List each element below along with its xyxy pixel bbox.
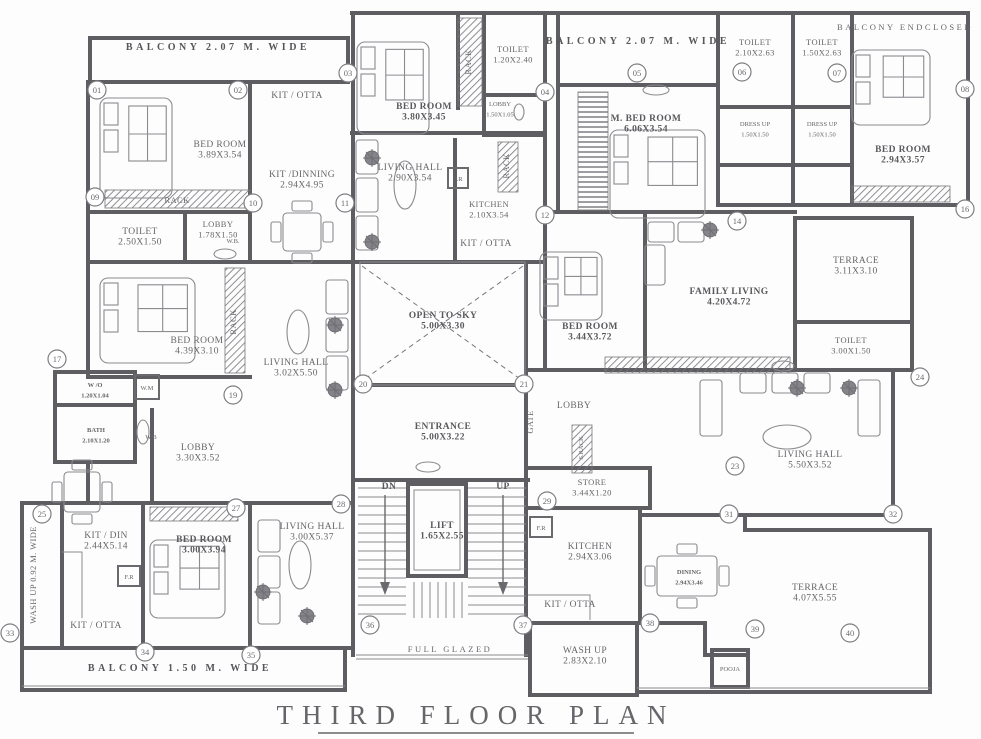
sofa-seat bbox=[858, 380, 880, 436]
label-balcony-enclosed: BALCONY ENDCLOSED bbox=[837, 22, 973, 32]
label-bed-room-top-mid-name: BED ROOM bbox=[396, 102, 452, 112]
floor-plan-page: BALCONY 2.07 M. WIDEBALCONY 2.07 M. WIDE… bbox=[0, 0, 981, 739]
column-marker-08-number: 08 bbox=[961, 84, 970, 94]
label-up: UP bbox=[496, 482, 509, 492]
label-fr-2-name: F.R bbox=[124, 574, 134, 581]
label-balcony-bottom: BALCONY 1.50 M. WIDE bbox=[88, 663, 272, 674]
label-toilet-top-mid: TOILET1.20X2.40 bbox=[493, 44, 533, 65]
chair bbox=[677, 598, 697, 608]
label-pooja-name: POOJA bbox=[720, 666, 741, 673]
column-marker-24: 24 bbox=[911, 368, 929, 386]
room-labels-layer: BALCONY 2.07 M. WIDEBALCONY 2.07 M. WIDE… bbox=[28, 22, 973, 674]
label-wb-lobby-name: W.B. bbox=[226, 238, 239, 245]
plant bbox=[326, 381, 344, 399]
label-wb-bath: W.B bbox=[145, 434, 157, 441]
column-marker-29-number: 29 bbox=[543, 496, 552, 506]
column-marker-10: 10 bbox=[244, 194, 262, 212]
column-marker-14: 14 bbox=[728, 212, 746, 230]
column-marker-06-number: 06 bbox=[738, 67, 747, 77]
label-kitchen-top-mid-dim: 2.10X3.54 bbox=[469, 210, 509, 220]
label-bed-room-top-left: BED ROOM3.89X3.54 bbox=[193, 140, 246, 161]
chair bbox=[271, 222, 281, 242]
label-lift-dim: 1.65X2.55 bbox=[420, 532, 464, 542]
label-lobby-left-name: LOBBY bbox=[203, 219, 234, 229]
column-marker-33-number: 33 bbox=[6, 628, 15, 638]
label-lobby-small-name: LOBBY bbox=[489, 101, 511, 108]
label-bed-room-top-left-name: BED ROOM bbox=[193, 140, 246, 150]
label-living-hall-mid-left: LIVING HALL3.02X5.50 bbox=[264, 358, 329, 379]
label-kit-otta-top-left-name: KIT / OTTA bbox=[271, 91, 323, 101]
plant bbox=[298, 607, 316, 625]
wash-basin bbox=[214, 249, 236, 259]
label-wb-bath-name: W.B bbox=[145, 434, 157, 441]
bed bbox=[610, 130, 705, 218]
column-marker-07-number: 07 bbox=[833, 68, 842, 78]
label-up-name: UP bbox=[496, 482, 509, 492]
label-terrace-bottom-dim: 4.07X5.55 bbox=[793, 594, 837, 604]
chair bbox=[719, 566, 729, 586]
label-lift-name: LIFT bbox=[430, 521, 454, 531]
label-store: STORE3.44X1.20 bbox=[572, 477, 612, 498]
label-lobby-small: LOBBY1.50X1.05 bbox=[486, 101, 513, 119]
label-full-glazed: FULL GLAZED bbox=[408, 644, 493, 654]
label-dress-up-2: DRESS UP1.50X1.50 bbox=[807, 121, 838, 139]
label-m-bed-room: M. BED ROOM6.06X3.54 bbox=[611, 114, 682, 135]
label-lobby-bottom-left-dim: 3.30X3.52 bbox=[176, 454, 220, 464]
label-wash-up-right-name: WASH UP bbox=[563, 646, 607, 656]
label-dress-up-2-dim: 1.50X1.50 bbox=[808, 132, 835, 139]
label-toilet-top-mid-dim: 1.20X2.40 bbox=[493, 55, 533, 65]
label-dress-up-1: DRESS UP1.50X1.50 bbox=[740, 121, 771, 139]
column-marker-10-number: 10 bbox=[249, 198, 258, 208]
label-w-o-name: W /O bbox=[88, 382, 103, 389]
column-marker-29: 29 bbox=[538, 492, 556, 510]
label-lift: LIFT1.65X2.55 bbox=[420, 521, 464, 542]
column-marker-25: 25 bbox=[33, 505, 51, 523]
label-family-living: FAMILY LIVING4.20X4.72 bbox=[689, 287, 768, 308]
column-marker-28-number: 28 bbox=[337, 499, 346, 509]
label-kit-dinning: KIT /DINNING2.94X4.95 bbox=[269, 170, 335, 191]
label-s-rack: S.RACK bbox=[578, 436, 585, 460]
dining-table bbox=[657, 556, 717, 596]
column-marker-06: 06 bbox=[733, 63, 751, 81]
label-bath-name: BATH bbox=[87, 427, 105, 434]
label-rack-vert-3: RACK bbox=[228, 309, 238, 335]
label-kit-otta-mid: KIT / OTTA bbox=[460, 239, 512, 249]
label-w-o-dim: 1.20X1.04 bbox=[81, 393, 109, 400]
label-toilet-top-2: TOILET1.50X2.63 bbox=[802, 37, 842, 58]
label-open-to-sky-dim: 5.00X3.30 bbox=[421, 322, 465, 332]
label-dress-up-1-name: DRESS UP bbox=[740, 121, 771, 128]
label-living-hall-right: LIVING HALL5.50X3.52 bbox=[778, 450, 843, 471]
label-kitchen-top-mid-name: KITCHEN bbox=[469, 199, 509, 209]
label-kit-din: KIT / DIN2.44X5.14 bbox=[84, 531, 128, 552]
label-kit-otta-right: KIT / OTTA bbox=[544, 600, 596, 610]
label-bed-room-mid-name: BED ROOM bbox=[562, 322, 618, 332]
label-living-hall-right-dim: 5.50X3.52 bbox=[788, 461, 832, 471]
dining-table bbox=[64, 472, 100, 512]
label-rack-vert-3-name: RACK bbox=[228, 309, 238, 335]
column-marker-12: 12 bbox=[536, 206, 554, 224]
column-marker-17: 17 bbox=[48, 350, 66, 368]
label-kit-dinning-name: KIT /DINNING bbox=[269, 170, 335, 180]
bed bbox=[100, 98, 172, 198]
label-s-rack-name: S.RACK bbox=[578, 436, 585, 460]
label-balcony-top-mid: BALCONY 2.07 M. WIDE bbox=[546, 36, 730, 47]
label-fr-1-name: F.R bbox=[453, 176, 463, 183]
label-kit-otta-mid-name: KIT / OTTA bbox=[460, 239, 512, 249]
plant bbox=[254, 583, 272, 601]
label-living-hall-right-name: LIVING HALL bbox=[778, 450, 843, 460]
label-gate-name: GATE bbox=[525, 410, 535, 433]
column-marker-20: 20 bbox=[354, 375, 372, 393]
label-toilet-top-1: TOILET2.10X2.63 bbox=[735, 37, 775, 58]
column-marker-38-number: 38 bbox=[646, 618, 655, 628]
wash-basin bbox=[416, 462, 440, 472]
plant bbox=[788, 379, 806, 397]
sofa-seat bbox=[258, 556, 280, 588]
label-dining: DINING2.94X3.46 bbox=[675, 569, 703, 587]
label-terrace-bottom: TERRACE4.07X5.55 bbox=[792, 583, 838, 604]
label-rack-vert-2: RACK bbox=[501, 153, 511, 179]
label-dining-name: DINING bbox=[677, 569, 701, 576]
label-bed-room-top-right-name: BED ROOM bbox=[875, 145, 931, 155]
plant bbox=[326, 316, 344, 334]
label-toilet-top-2-dim: 1.50X2.63 bbox=[802, 48, 842, 58]
label-kit-otta-bottom-left-name: KIT / OTTA bbox=[70, 621, 122, 631]
label-w-m-name: W.M bbox=[141, 385, 154, 392]
column-marker-20-number: 20 bbox=[359, 379, 368, 389]
column-marker-40-number: 40 bbox=[846, 628, 855, 638]
label-bed-room-mid-left-dim: 4.39X3.10 bbox=[175, 347, 219, 357]
column-marker-17-number: 17 bbox=[53, 354, 62, 364]
plant bbox=[840, 379, 858, 397]
label-balcony-top-left: BALCONY 2.07 M. WIDE bbox=[126, 42, 310, 53]
label-lobby-small-dim: 1.50X1.05 bbox=[486, 112, 513, 119]
column-marker-39: 39 bbox=[746, 620, 764, 638]
label-dress-up-1-dim: 1.50X1.50 bbox=[741, 132, 768, 139]
column-marker-01: 01 bbox=[88, 81, 106, 99]
label-lobby-bottom-left-name: LOBBY bbox=[181, 443, 215, 453]
label-fr-3: F.R bbox=[536, 525, 546, 532]
label-terrace-bottom-name: TERRACE bbox=[792, 583, 838, 593]
label-living-hall-top-mid-dim: 2.90X3.54 bbox=[388, 174, 432, 184]
label-bed-room-top-mid-dim: 3.80X3.45 bbox=[402, 113, 446, 123]
label-w-o: W /O1.20X1.04 bbox=[81, 382, 109, 400]
label-toilet-top-1-name: TOILET bbox=[739, 37, 771, 47]
label-living-hall-bottom-left-name: LIVING HALL bbox=[280, 522, 345, 532]
label-dress-up-2-name: DRESS UP bbox=[807, 121, 838, 128]
label-bed-room-mid-left-name: BED ROOM bbox=[170, 336, 223, 346]
column-marker-24-number: 24 bbox=[916, 372, 925, 382]
label-toilet-top-1-dim: 2.10X2.63 bbox=[735, 48, 775, 58]
column-marker-19: 19 bbox=[224, 386, 242, 404]
chair bbox=[323, 222, 333, 242]
label-rack-vert-2-name: RACK bbox=[501, 153, 511, 179]
label-bed-room-mid-left: BED ROOM4.39X3.10 bbox=[170, 336, 223, 357]
column-marker-03: 03 bbox=[339, 64, 357, 82]
label-bed-room-bottom-left-name: BED ROOM bbox=[176, 535, 232, 545]
sofa-seat bbox=[804, 373, 830, 393]
label-terrace-right: TERRACE3.11X3.10 bbox=[833, 256, 879, 277]
up-arrowhead bbox=[498, 582, 508, 595]
column-marker-31-number: 31 bbox=[725, 509, 734, 519]
label-lobby-right-name: LOBBY bbox=[557, 401, 591, 411]
chair bbox=[52, 482, 62, 502]
label-terrace-right-name: TERRACE bbox=[833, 256, 879, 266]
sofa-seat bbox=[700, 380, 722, 436]
label-wash-up-right: WASH UP2.83X2.10 bbox=[563, 646, 607, 667]
chair bbox=[102, 482, 112, 502]
column-marker-35-number: 35 bbox=[247, 650, 256, 660]
column-marker-38: 38 bbox=[641, 614, 659, 632]
label-gate: GATE bbox=[525, 410, 535, 433]
label-bath: BATH2.10X1.20 bbox=[82, 427, 109, 445]
label-bed-room-bottom-left: BED ROOM3.00X3.94 bbox=[176, 535, 232, 556]
label-entrance-name: ENTRANCE bbox=[415, 422, 472, 432]
column-marker-11: 11 bbox=[336, 194, 354, 212]
label-lobby-bottom-left: LOBBY3.30X3.52 bbox=[176, 443, 220, 464]
label-wash-up-strip: WASH UP 0.92 M. WIDE bbox=[28, 526, 38, 624]
label-kitchen-right-name: KITCHEN bbox=[568, 542, 613, 552]
column-marker-37: 37 bbox=[514, 616, 532, 634]
label-living-hall-mid-left-name: LIVING HALL bbox=[264, 358, 329, 368]
column-marker-12-number: 12 bbox=[541, 210, 550, 220]
label-bed-room-top-left-dim: 3.89X3.54 bbox=[198, 151, 242, 161]
column-marker-40: 40 bbox=[841, 624, 859, 642]
column-marker-11-number: 11 bbox=[341, 198, 349, 208]
column-marker-07: 07 bbox=[828, 64, 846, 82]
column-marker-34-number: 34 bbox=[141, 647, 150, 657]
label-m-bed-room-dim: 6.06X3.54 bbox=[624, 125, 668, 135]
column-marker-27: 27 bbox=[227, 499, 245, 517]
chair bbox=[677, 544, 697, 554]
column-marker-19-number: 19 bbox=[229, 390, 238, 400]
dn-arrowhead bbox=[380, 582, 390, 595]
sofa-seat bbox=[326, 280, 348, 314]
column-marker-36-number: 36 bbox=[366, 620, 375, 630]
column-marker-36: 36 bbox=[361, 616, 379, 634]
chair bbox=[72, 514, 92, 524]
label-bed-room-top-right: BED ROOM2.94X3.57 bbox=[875, 145, 931, 166]
label-living-hall-bottom-left: LIVING HALL3.00X5.37 bbox=[280, 522, 345, 543]
drawing-title: THIRD FLOOR PLAN bbox=[276, 700, 675, 733]
label-lobby-left: LOBBY1.78X1.50 bbox=[198, 219, 238, 240]
label-store-name: STORE bbox=[578, 477, 607, 487]
label-toilet-left: TOILET2.50X1.50 bbox=[118, 227, 162, 248]
label-dining-dim: 2.94X3.46 bbox=[675, 580, 703, 587]
label-open-to-sky: OPEN TO SKY5.00X3.30 bbox=[409, 311, 477, 332]
label-kitchen-right-dim: 2.94X3.06 bbox=[568, 553, 612, 563]
label-entrance-dim: 5.00X3.22 bbox=[421, 433, 465, 443]
floor-plan-canvas: BALCONY 2.07 M. WIDEBALCONY 2.07 M. WIDE… bbox=[0, 0, 981, 739]
column-marker-28: 28 bbox=[332, 495, 350, 513]
label-kit-din-dim: 2.44X5.14 bbox=[84, 542, 128, 552]
column-marker-33: 33 bbox=[1, 624, 19, 642]
column-marker-25-number: 25 bbox=[38, 509, 47, 519]
column-marker-01-number: 01 bbox=[93, 85, 102, 95]
label-rack-top-left-name: RACK bbox=[164, 195, 190, 205]
column-marker-23-number: 23 bbox=[731, 461, 740, 471]
label-kitchen-right: KITCHEN2.94X3.06 bbox=[568, 542, 613, 563]
column-marker-27-number: 27 bbox=[232, 503, 241, 513]
label-bath-dim: 2.10X1.20 bbox=[82, 438, 109, 445]
column-marker-39-number: 39 bbox=[751, 624, 760, 634]
label-full-glazed-name: FULL GLAZED bbox=[408, 644, 493, 654]
column-marker-14-number: 14 bbox=[733, 216, 742, 226]
column-marker-05-number: 05 bbox=[633, 68, 642, 78]
label-w-m: W.M bbox=[141, 385, 154, 392]
column-marker-21: 21 bbox=[515, 375, 533, 393]
centre-table bbox=[287, 310, 309, 354]
label-open-to-sky-name: OPEN TO SKY bbox=[409, 311, 477, 321]
label-balcony-bottom-name: BALCONY 1.50 M. WIDE bbox=[88, 663, 272, 674]
label-toilet-left-name: TOILET bbox=[122, 227, 157, 237]
label-family-living-name: FAMILY LIVING bbox=[689, 287, 768, 297]
bed bbox=[852, 50, 930, 125]
label-fr-2: F.R bbox=[124, 574, 134, 581]
label-kit-otta-bottom-left: KIT / OTTA bbox=[70, 621, 122, 631]
bed bbox=[540, 252, 602, 320]
column-marker-02-number: 02 bbox=[234, 85, 243, 95]
label-wash-up-strip-name: WASH UP 0.92 M. WIDE bbox=[28, 526, 38, 624]
column-marker-04-number: 04 bbox=[541, 87, 550, 97]
label-fr-3-name: F.R bbox=[536, 525, 546, 532]
label-living-hall-mid-left-dim: 3.02X5.50 bbox=[274, 369, 318, 379]
label-fr-1: F.R bbox=[453, 176, 463, 183]
dining-table bbox=[283, 213, 321, 251]
label-bed-room-mid-dim: 3.44X3.72 bbox=[568, 333, 612, 343]
column-marker-04: 04 bbox=[536, 83, 554, 101]
label-living-hall-bottom-left-dim: 3.00X5.37 bbox=[290, 533, 334, 543]
wash-basin bbox=[514, 104, 524, 120]
page-title: THIRD FLOOR PLAN bbox=[276, 700, 675, 730]
label-balcony-enclosed-name: BALCONY ENDCLOSED bbox=[837, 22, 973, 32]
label-toilet-right: TOILET3.00X1.50 bbox=[831, 335, 871, 356]
label-dn: DN bbox=[382, 482, 397, 492]
chair bbox=[645, 566, 655, 586]
label-kit-otta-right-name: KIT / OTTA bbox=[544, 600, 596, 610]
label-kitchen-top-mid: KITCHEN2.10X3.54 bbox=[469, 199, 509, 220]
column-marker-02: 02 bbox=[229, 81, 247, 99]
label-kit-dinning-dim: 2.94X4.95 bbox=[280, 181, 324, 191]
label-rack-vert-1: RACK bbox=[463, 49, 473, 75]
label-balcony-top-mid-name: BALCONY 2.07 M. WIDE bbox=[546, 36, 730, 47]
chair bbox=[292, 201, 312, 211]
label-balcony-top-left-name: BALCONY 2.07 M. WIDE bbox=[126, 42, 310, 53]
column-marker-23: 23 bbox=[726, 457, 744, 475]
label-kit-otta-top-left: KIT / OTTA bbox=[271, 91, 323, 101]
label-wash-up-right-dim: 2.83X2.10 bbox=[563, 657, 607, 667]
column-marker-03-number: 03 bbox=[344, 68, 353, 78]
sofa-seat bbox=[678, 222, 704, 242]
column-marker-21-number: 21 bbox=[520, 379, 529, 389]
label-rack-top-left: RACK bbox=[164, 195, 190, 205]
label-entrance: ENTRANCE5.00X3.22 bbox=[415, 422, 472, 443]
label-bed-room-top-right-dim: 2.94X3.57 bbox=[881, 156, 925, 166]
label-terrace-right-dim: 3.11X3.10 bbox=[834, 267, 877, 277]
column-marker-32: 32 bbox=[884, 505, 902, 523]
label-dn-name: DN bbox=[382, 482, 397, 492]
column-marker-35: 35 bbox=[242, 646, 260, 664]
centre-table bbox=[289, 541, 311, 589]
label-toilet-left-dim: 2.50X1.50 bbox=[118, 238, 162, 248]
column-marker-34: 34 bbox=[136, 643, 154, 661]
label-living-hall-top-mid: LIVING HALL2.90X3.54 bbox=[378, 163, 443, 184]
column-marker-31: 31 bbox=[720, 505, 738, 523]
label-bed-room-mid: BED ROOM3.44X3.72 bbox=[562, 322, 618, 343]
sofa-seat bbox=[258, 520, 280, 552]
column-marker-09-number: 09 bbox=[91, 192, 100, 202]
sofa-seat bbox=[645, 245, 665, 285]
label-family-living-dim: 4.20X4.72 bbox=[707, 298, 751, 308]
label-kit-din-name: KIT / DIN bbox=[84, 531, 128, 541]
sofa-seat bbox=[740, 373, 766, 393]
column-marker-32-number: 32 bbox=[889, 509, 898, 519]
label-toilet-right-name: TOILET bbox=[835, 335, 867, 345]
label-pooja: POOJA bbox=[720, 666, 741, 673]
label-bed-room-bottom-left-dim: 3.00X3.94 bbox=[182, 546, 226, 556]
label-rack-vert-1-name: RACK bbox=[463, 49, 473, 75]
label-wb-lobby: W.B. bbox=[226, 238, 239, 245]
staircase bbox=[358, 488, 526, 618]
column-marker-37-number: 37 bbox=[519, 620, 528, 630]
column-marker-16-number: 16 bbox=[961, 204, 970, 214]
column-marker-09: 09 bbox=[86, 188, 104, 206]
centre-table bbox=[763, 425, 811, 449]
sofa-seat bbox=[356, 178, 378, 212]
label-lobby-right: LOBBY bbox=[557, 401, 591, 411]
label-store-dim: 3.44X1.20 bbox=[572, 488, 612, 498]
column-marker-08: 08 bbox=[956, 80, 974, 98]
label-bed-room-top-mid: BED ROOM3.80X3.45 bbox=[396, 102, 452, 123]
label-toilet-right-dim: 3.00X1.50 bbox=[831, 346, 871, 356]
column-marker-16: 16 bbox=[956, 200, 974, 218]
label-m-bed-room-name: M. BED ROOM bbox=[611, 114, 682, 124]
sofa-seat bbox=[648, 222, 674, 242]
column-marker-05: 05 bbox=[628, 64, 646, 82]
label-toilet-top-2-name: TOILET bbox=[806, 37, 838, 47]
label-living-hall-top-mid-name: LIVING HALL bbox=[378, 163, 443, 173]
label-toilet-top-mid-name: TOILET bbox=[497, 44, 529, 54]
